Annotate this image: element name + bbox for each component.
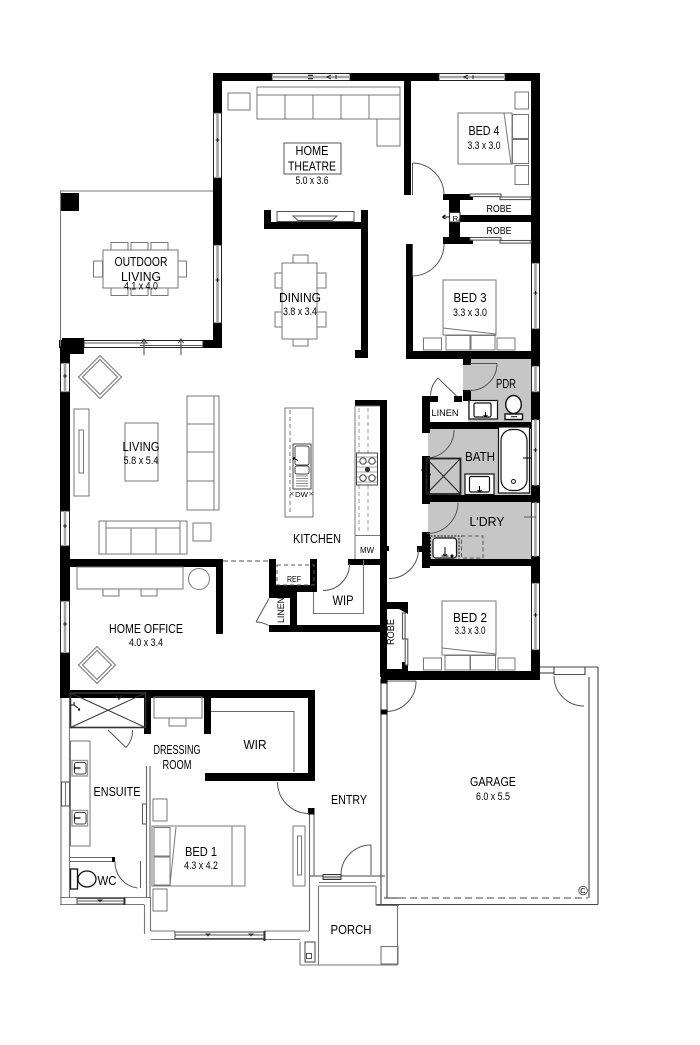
svg-text:4.3 x 4.2: 4.3 x 4.2 [184, 860, 218, 872]
svg-text:HOME: HOME [296, 143, 329, 158]
svg-text:OUTDOOR: OUTDOOR [115, 255, 168, 269]
svg-text:ROOM: ROOM [163, 759, 192, 773]
svg-text:DRESSING: DRESSING [154, 744, 201, 758]
svg-text:THEATRE: THEATRE [288, 159, 336, 173]
svg-text:DW: DW [295, 490, 309, 499]
svg-text:L'DRY: L'DRY [470, 515, 506, 529]
svg-text:LIVING: LIVING [123, 439, 160, 454]
svg-text:ROBE: ROBE [385, 619, 397, 645]
svg-text:BED 1: BED 1 [185, 844, 217, 859]
svg-text:ROBE: ROBE [487, 203, 512, 215]
svg-text:5.8 x 5.4: 5.8 x 5.4 [124, 455, 159, 467]
svg-text:GARAGE: GARAGE [470, 774, 516, 789]
svg-text:ROBE: ROBE [487, 225, 512, 237]
svg-text:3.3 x 3.0: 3.3 x 3.0 [455, 625, 486, 637]
svg-text:4.0 x 3.4: 4.0 x 3.4 [129, 637, 163, 649]
svg-text:HOME OFFICE: HOME OFFICE [109, 621, 183, 636]
svg-text:DINING: DINING [279, 291, 321, 306]
svg-text:3.3 x 3.0: 3.3 x 3.0 [453, 307, 487, 319]
svg-text:REF: REF [287, 575, 301, 585]
svg-text:WIP: WIP [333, 593, 354, 608]
svg-text:PORCH: PORCH [331, 922, 372, 937]
svg-text:6.0 x 5.5: 6.0 x 5.5 [476, 791, 510, 803]
svg-text:BATH: BATH [465, 449, 495, 464]
svg-text:ENTRY: ENTRY [331, 792, 367, 807]
svg-text:BED 2: BED 2 [453, 610, 487, 625]
svg-text:WC: WC [98, 873, 117, 888]
svg-text:4.1 x 4.0: 4.1 x 4.0 [124, 281, 158, 293]
svg-text:LINEN: LINEN [432, 408, 459, 418]
svg-text:5.0 x 3.6: 5.0 x 3.6 [296, 175, 329, 187]
svg-text:BED 3: BED 3 [454, 290, 487, 305]
svg-text:3.3 x 3.0: 3.3 x 3.0 [468, 140, 501, 152]
svg-text:BED 4: BED 4 [469, 123, 500, 138]
svg-text:WIR: WIR [244, 737, 267, 752]
svg-text:PDR: PDR [496, 378, 516, 392]
svg-text:MW: MW [360, 546, 374, 555]
svg-text:ENSUITE: ENSUITE [94, 784, 141, 799]
svg-text:RA: RA [453, 214, 464, 222]
svg-text:©: © [578, 883, 588, 898]
svg-text:3.8 x 3.4: 3.8 x 3.4 [283, 306, 317, 318]
svg-text:LINEN: LINEN [276, 597, 286, 623]
svg-text:KITCHEN: KITCHEN [293, 531, 341, 546]
